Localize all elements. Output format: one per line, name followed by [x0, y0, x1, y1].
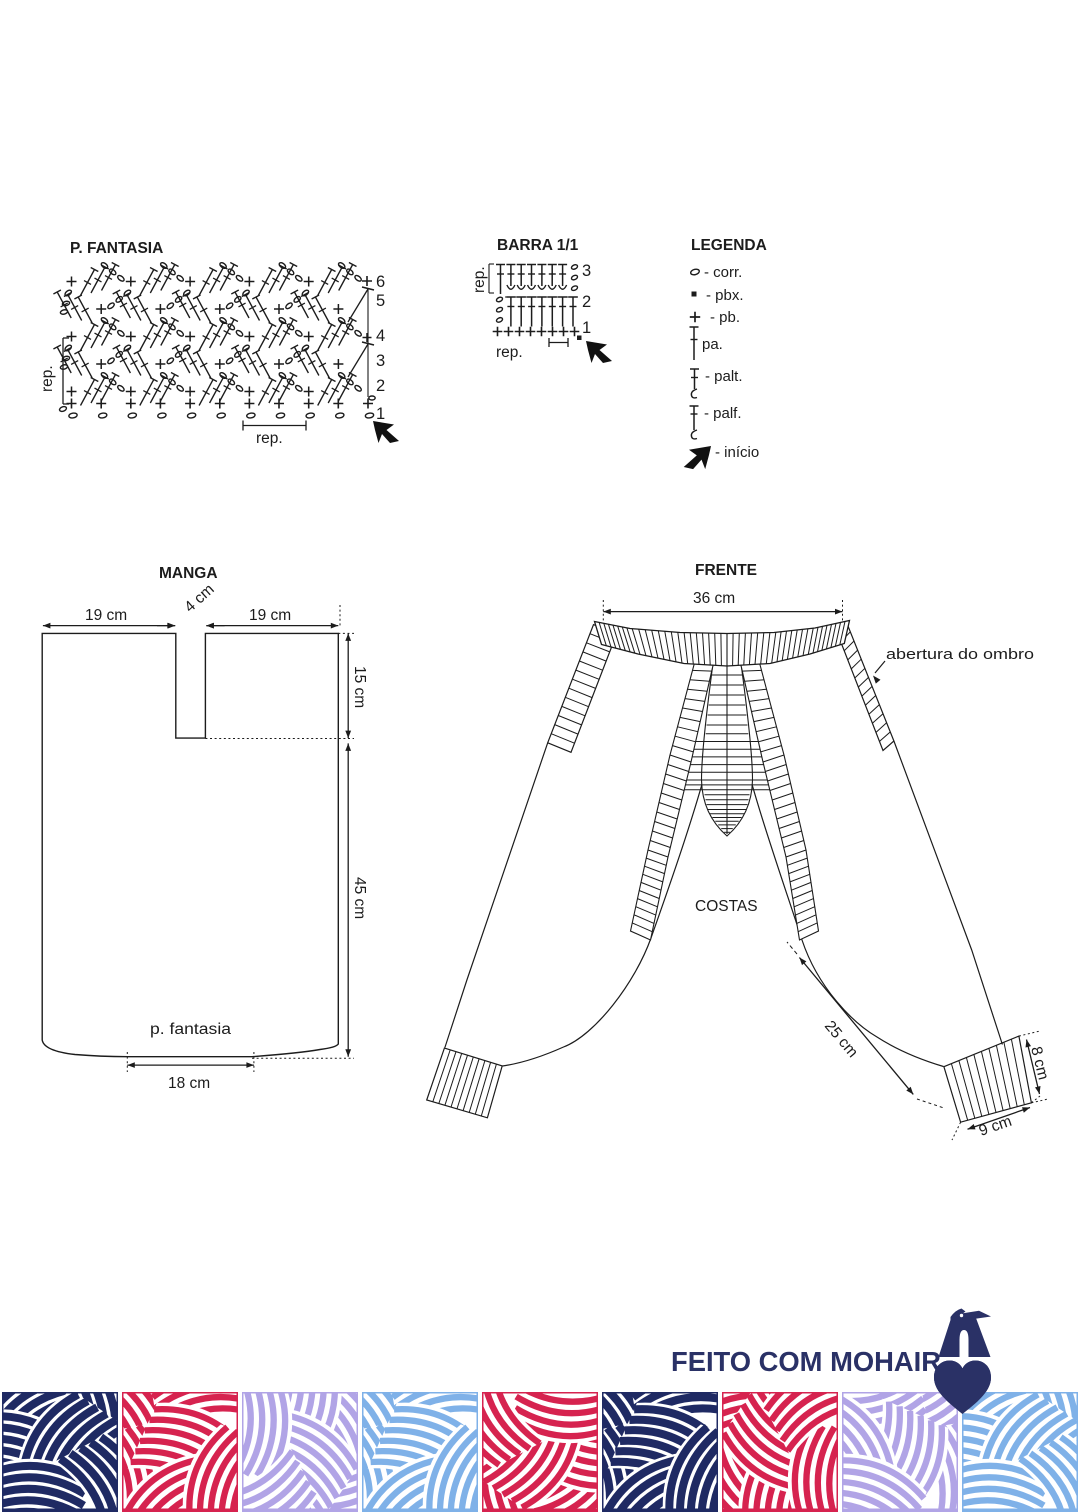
- svg-text:6: 6: [376, 273, 385, 291]
- svg-text:rep.: rep.: [496, 344, 523, 361]
- svg-text:19 cm: 19 cm: [85, 607, 127, 624]
- svg-text:- palt.: - palt.: [705, 368, 743, 385]
- svg-text:45 cm: 45 cm: [351, 877, 368, 919]
- svg-text:15 cm: 15 cm: [351, 666, 368, 708]
- svg-text:FRENTE: FRENTE: [695, 562, 757, 579]
- svg-text:1: 1: [376, 405, 385, 423]
- svg-text:BARRA 1/1: BARRA 1/1: [497, 237, 579, 254]
- svg-text:4: 4: [376, 327, 385, 345]
- svg-text:rep.: rep.: [39, 365, 56, 392]
- svg-text:3: 3: [376, 352, 385, 370]
- svg-text:- pbx.: - pbx.: [706, 287, 744, 304]
- svg-text:pa.: pa.: [702, 336, 723, 353]
- svg-text:3: 3: [582, 262, 591, 280]
- svg-text:- palf.: - palf.: [704, 405, 742, 422]
- svg-text:MANGA: MANGA: [159, 565, 218, 582]
- svg-text:P. FANTASIA: P. FANTASIA: [70, 240, 163, 257]
- svg-text:19 cm: 19 cm: [249, 607, 291, 624]
- svg-text:LEGENDA: LEGENDA: [691, 237, 767, 254]
- svg-text:- início: - início: [715, 444, 759, 461]
- svg-text:2: 2: [582, 293, 591, 311]
- svg-text:COSTAS: COSTAS: [695, 898, 758, 915]
- svg-text:p. fantasia: p. fantasia: [150, 1021, 231, 1038]
- svg-text:2: 2: [376, 377, 385, 395]
- svg-text:rep.: rep.: [471, 266, 488, 293]
- svg-text:FEITO COM MOHAIR: FEITO COM MOHAIR: [671, 1346, 941, 1377]
- svg-text:abertura do ombro: abertura do ombro: [886, 646, 1034, 663]
- svg-text:5: 5: [376, 292, 385, 310]
- svg-text:- corr.: - corr.: [704, 264, 742, 281]
- svg-text:- pb.: - pb.: [710, 309, 740, 326]
- svg-text:36 cm: 36 cm: [693, 590, 735, 607]
- svg-text:rep.: rep.: [256, 430, 283, 447]
- svg-text:18 cm: 18 cm: [168, 1075, 210, 1092]
- svg-text:1: 1: [582, 319, 591, 337]
